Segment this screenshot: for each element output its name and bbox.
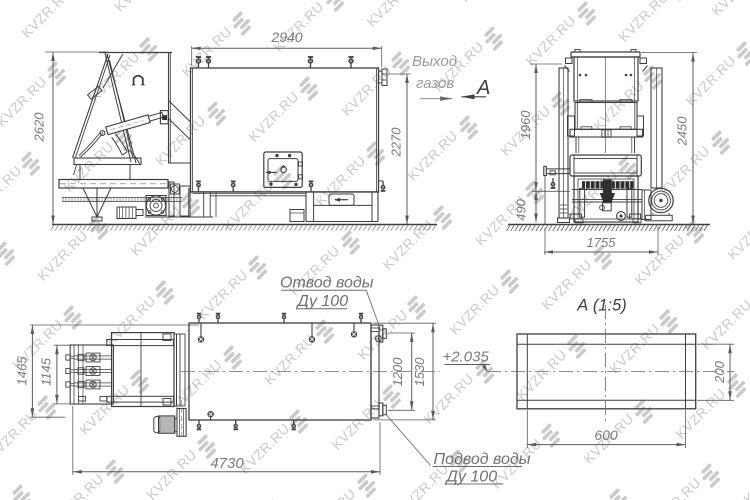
svg-text:Отвод воды: Отвод воды: [280, 275, 374, 292]
svg-text:2270: 2270: [389, 127, 404, 158]
svg-text:1145: 1145: [39, 357, 54, 386]
svg-text:А: А: [476, 77, 490, 99]
svg-text:Ду 100: Ду 100: [445, 469, 498, 486]
svg-text:2940: 2940: [270, 29, 302, 45]
svg-text:Подвод воды: Подвод воды: [434, 451, 531, 468]
svg-text:1960: 1960: [518, 110, 533, 140]
svg-text:200: 200: [712, 360, 727, 383]
svg-text:+2.035: +2.035: [443, 349, 490, 366]
svg-text:4730: 4730: [210, 455, 244, 472]
svg-text:600: 600: [594, 427, 618, 443]
svg-text:Выход: Выход: [412, 53, 457, 70]
svg-text:газов: газов: [416, 75, 454, 92]
svg-text:Ду 100: Ду 100: [296, 293, 349, 310]
svg-text:2620: 2620: [32, 112, 47, 143]
svg-text:2450: 2450: [675, 116, 690, 147]
svg-text:1755: 1755: [587, 235, 617, 250]
svg-text:490: 490: [514, 198, 529, 220]
svg-text:А (1:5): А (1:5): [576, 297, 627, 315]
svg-text:1465: 1465: [15, 356, 30, 386]
